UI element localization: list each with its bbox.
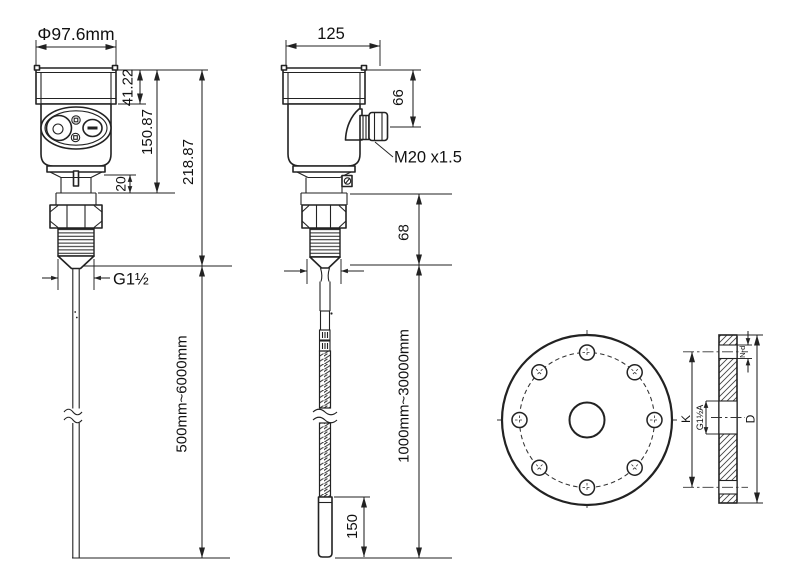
dim-head-height: 150.87	[139, 109, 156, 155]
flange-section-view: K G1½A D N-d	[679, 331, 763, 503]
steel-cable	[320, 351, 331, 408]
dim-bolt-holes: N-d	[738, 346, 747, 358]
flange-face-view	[497, 330, 677, 508]
hex-nut	[50, 205, 102, 228]
center-hole	[570, 403, 605, 438]
dim-weight-length: 150	[344, 514, 361, 539]
process-thread-side	[310, 229, 340, 257]
break-symbol	[64, 409, 82, 415]
dim-center-thread: G1½A	[695, 405, 705, 431]
rod-probe-view: Φ97.6mm 41.22 150.87 20 218.87 G1½ 500mm…	[35, 24, 233, 558]
dim-outer-diameter: D	[744, 414, 758, 423]
dim-rod-length-range: 500mm~6000mm	[174, 335, 191, 452]
dim-neck-height: 20	[113, 176, 129, 192]
technical-drawing: Φ97.6mm 41.22 150.87 20 218.87 G1½ 500mm…	[0, 0, 790, 580]
dim-process-thread: G1½	[113, 271, 149, 289]
dim-head-diameter: Φ97.6mm	[37, 24, 114, 44]
process-thread	[58, 229, 94, 256]
level-transmitter-dimension-drawing: Φ97.6mm 41.22 150.87 20 218.87 G1½ 500mm…	[0, 0, 790, 580]
dim-gland-thread: M20 x1.5	[394, 149, 462, 167]
break-symbol	[313, 409, 337, 415]
display-window	[47, 116, 72, 141]
dim-gland-offset: 66	[390, 89, 407, 106]
cable-probe	[313, 268, 337, 557]
cable-probe-view: 125 66 M20 x1.5 68 1000mm~30000mm 150	[282, 25, 462, 558]
display-panel	[41, 107, 111, 149]
dim-total-mount-height: 218.87	[180, 139, 197, 185]
counter-weight	[319, 497, 333, 557]
dim-bolt-circle: K	[679, 415, 693, 423]
vent-tab	[74, 171, 79, 186]
ground-clamp	[342, 176, 352, 187]
dim-mount-section-height: 68	[396, 224, 413, 241]
dim-cap-height: 41.22	[120, 69, 137, 107]
hex-nut-side	[302, 205, 346, 228]
dim-cable-length-range: 1000mm~30000mm	[396, 329, 413, 463]
dim-head-width: 125	[317, 25, 345, 43]
rod-probe	[64, 269, 82, 558]
